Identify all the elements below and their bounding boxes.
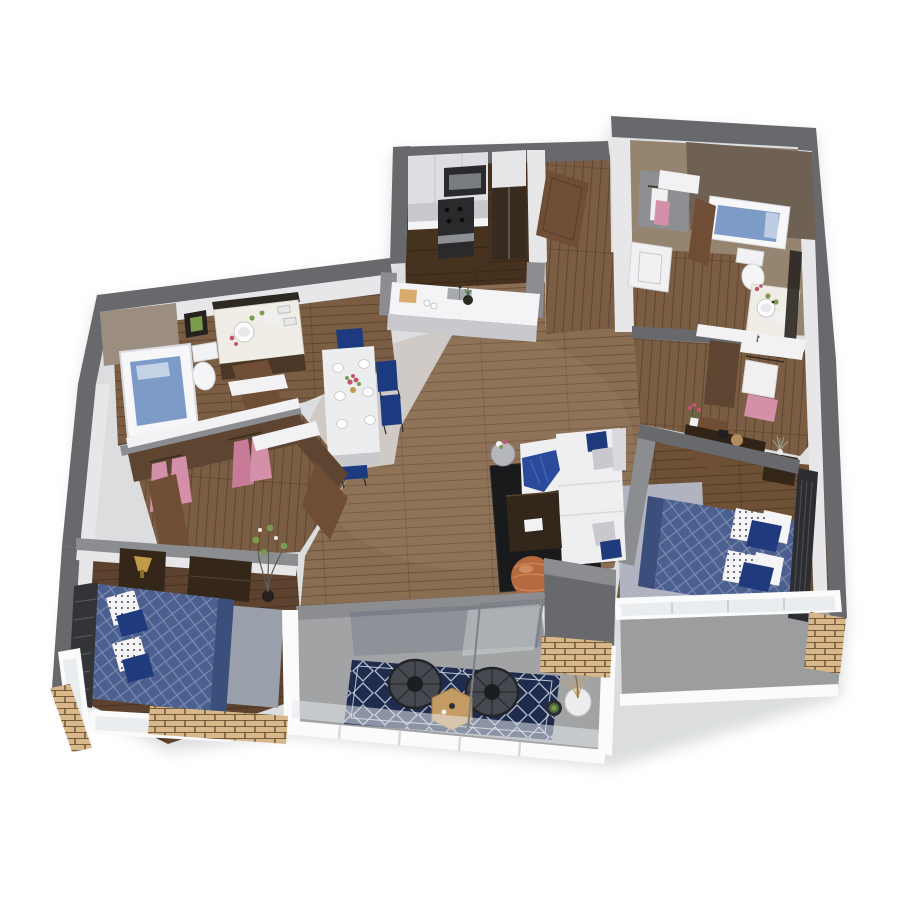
closet-panel [704,340,740,408]
brick-ledge-right [804,612,846,674]
balcony-partition-wall [544,558,616,648]
floor-plan-svg [0,0,900,900]
reflection-sink [264,310,280,326]
microwave [444,165,486,197]
coffee-table [506,492,562,552]
navy-pillow [600,539,622,560]
mug [431,303,437,309]
gray-pillow [592,447,614,470]
left-bed [68,582,234,714]
succulent-pot [546,700,562,716]
brick-planter-center [540,636,612,678]
framed-art [184,310,208,338]
mug [424,300,430,306]
hanging-clothes-white [742,360,778,398]
laptop [524,518,543,532]
dresser [187,556,252,602]
bathtub [120,344,198,438]
refrigerator [492,186,526,260]
oven-range [438,197,474,259]
cutting-board [399,289,417,303]
floor-plan-render [0,0,900,900]
dining-table [322,346,380,468]
washer [628,242,672,292]
